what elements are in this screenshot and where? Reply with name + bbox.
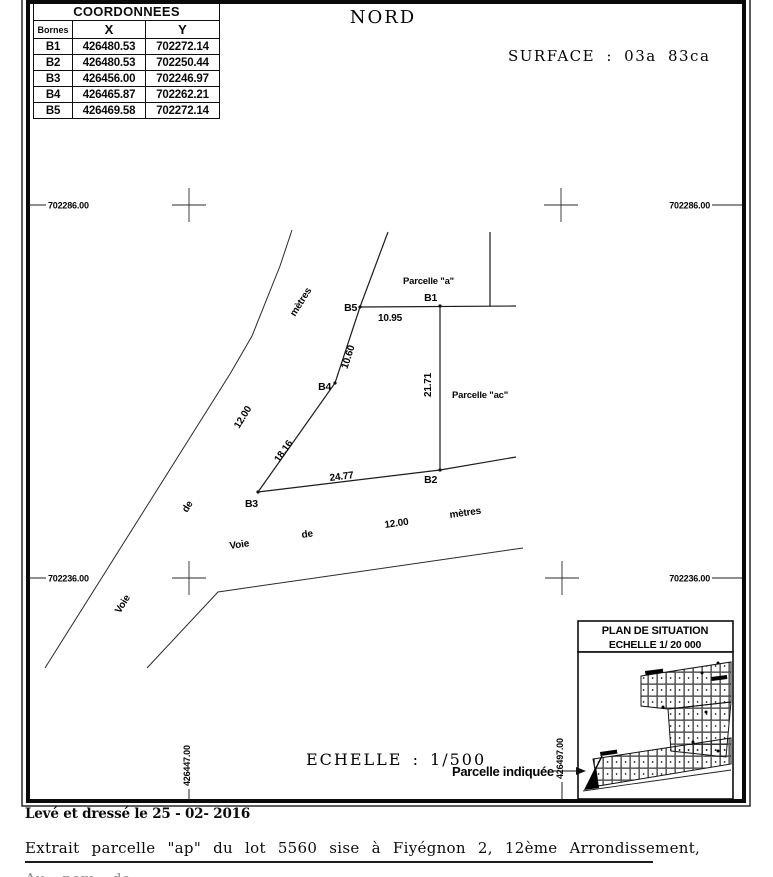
road-horizontal-word-de: de xyxy=(301,528,314,541)
grid-cross xyxy=(172,188,206,222)
surface-label: SURFACE : 03a 83ca xyxy=(508,47,710,65)
extract-underline xyxy=(25,861,653,863)
road-horizontal-word-metres: mètres xyxy=(449,506,482,521)
dimension-b5-b1: 10.95 xyxy=(378,313,403,324)
inset-title: PLAN DE SITUATION xyxy=(602,625,709,637)
grid-label-north-east: 702286.00 xyxy=(669,201,710,211)
grid-label-south-west: 702236.00 xyxy=(48,574,89,584)
road-diagonal-word-voie: Voie xyxy=(113,593,133,616)
survey-drawing: NORD SURFACE : 03a 83ca ECHELLE : 1/500 … xyxy=(0,0,773,877)
borne-label-b1: B1 xyxy=(424,292,437,304)
grid-label-south-east: 702236.00 xyxy=(669,574,710,584)
grid-label-north-west: 702286.00 xyxy=(48,201,89,211)
grid-cross xyxy=(545,561,579,595)
indicated-parcel-label: Parcelle indiquée xyxy=(452,764,554,779)
road-horizontal-word-width: 12.00 xyxy=(384,517,410,531)
road-diagonal-word-de: de xyxy=(180,499,196,515)
grid-label-west-x: 426447.00 xyxy=(182,745,192,786)
dimension-b4-b5: 10.60 xyxy=(340,343,358,370)
road-horizontal-word-voie: Voie xyxy=(229,538,251,552)
situation-plan-inset: PLAN DE SITUATION ECHELLE 1/ 20 000 xyxy=(578,621,733,799)
parcel-boundary-lines xyxy=(256,232,516,494)
borne-label-b3: B3 xyxy=(245,498,258,510)
north-label: NORD xyxy=(350,7,417,28)
road-diagonal-word-metres: mètres xyxy=(288,285,314,318)
dimension-b3-b2: 24.77 xyxy=(329,470,355,484)
parcel-name-ac: Parcelle "ac" xyxy=(452,390,508,401)
borne-label-b2: B2 xyxy=(424,474,437,486)
survey-date-note: Levé et dressé le 25 - 02- 2016 xyxy=(25,806,250,822)
grid-cross xyxy=(544,188,578,222)
truncated-footer-line: Au nom de ....... xyxy=(25,870,181,877)
inset-scale: ECHELLE 1/ 20 000 xyxy=(609,639,702,651)
extract-description: Extrait parcelle "ap" du lot 5560 sise à… xyxy=(25,839,700,857)
road-diagonal-word-width: 12.00 xyxy=(232,404,254,431)
survey-plan-page: COORDONNEES Bornes X Y B1 426480.53 7022… xyxy=(0,0,773,877)
dimension-b1-b2: 21.71 xyxy=(423,372,434,397)
borne-label-b4: B4 xyxy=(318,381,331,393)
grid-cross xyxy=(172,561,206,595)
grid-label-east-x: 426497.00 xyxy=(555,738,565,779)
parcel-name-a: Parcelle "a" xyxy=(403,276,454,287)
borne-label-b5: B5 xyxy=(344,302,357,314)
dimension-b3-b4: 18.16 xyxy=(273,438,296,465)
